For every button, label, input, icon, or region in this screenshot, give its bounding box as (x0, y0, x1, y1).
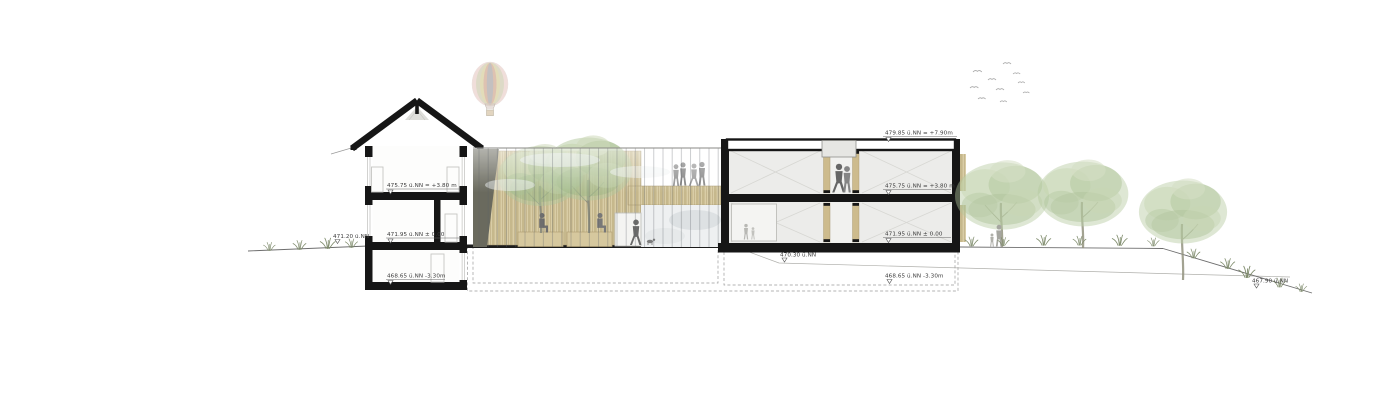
annotation-label: 468.65 ü.NN -3.30m (387, 274, 446, 280)
level-marker-icon (782, 258, 787, 262)
landscape-tree-icon (955, 160, 1049, 247)
elevation-annotation-terrain-left: 471.20 ü.NN (333, 234, 369, 244)
annotation-label: 467.90 ü.NN (1252, 279, 1288, 285)
annotation-label: 475.75 ü.NN = +3.80 m (387, 183, 457, 189)
child-icon (990, 234, 994, 247)
glass-facade-mullions (473, 148, 724, 247)
pitched-roof (351, 101, 484, 151)
annotation-label: 471.95 ü.NN ± 0.00 (387, 232, 445, 238)
section-drawing-canvas: 475.75 ü.NN = +3.80 m 471.95 ü.NN ± 0.00… (0, 0, 1400, 412)
annotation-label: 479.85 ü.NN = +7.90m (885, 131, 953, 137)
eave-extension-line (331, 148, 353, 155)
elevation-annotation-terrain-far-right: 467.90 ü.NN (1252, 279, 1288, 289)
level-marker-icon (887, 280, 892, 284)
ridge-post (415, 101, 419, 114)
section-drawing: 475.75 ü.NN = +3.80 m 471.95 ü.NN ± 0.00… (0, 0, 1400, 412)
landscape-tree-icon (1038, 159, 1129, 248)
annotation-label: 471.20 ü.NN (333, 234, 369, 240)
annotation-label: 468.65 ü.NN -3.30m (885, 274, 944, 280)
annotation-label: 471.95 ü.NN ± 0.00 (885, 232, 943, 238)
annotation-label: 470.30 ü.NN (780, 253, 816, 259)
left-building-section (351, 101, 484, 291)
landscape-tree-icon (1139, 178, 1227, 280)
hot-air-balloon-icon (472, 62, 508, 116)
elevation-annotation-terrain-courtyard: 470.30 ü.NN (780, 253, 816, 263)
annotation-label: 475.75 ü.NN = +3.80 m (885, 184, 955, 190)
corridor-ground (831, 202, 852, 243)
courtyard-glass-link (467, 135, 724, 248)
basement-dashed-outline (468, 246, 959, 291)
terrain-line-right-flat (960, 247, 1163, 249)
level-marker-icon (1254, 284, 1259, 288)
level-marker-icon (335, 240, 340, 244)
terrain-line-right-slope (1163, 249, 1312, 294)
elevation-annotation-right-basement: 468.65 ü.NN -3.30m (885, 274, 944, 284)
birds-flock-icon (970, 63, 1029, 102)
roof-bulkhead (822, 141, 856, 158)
